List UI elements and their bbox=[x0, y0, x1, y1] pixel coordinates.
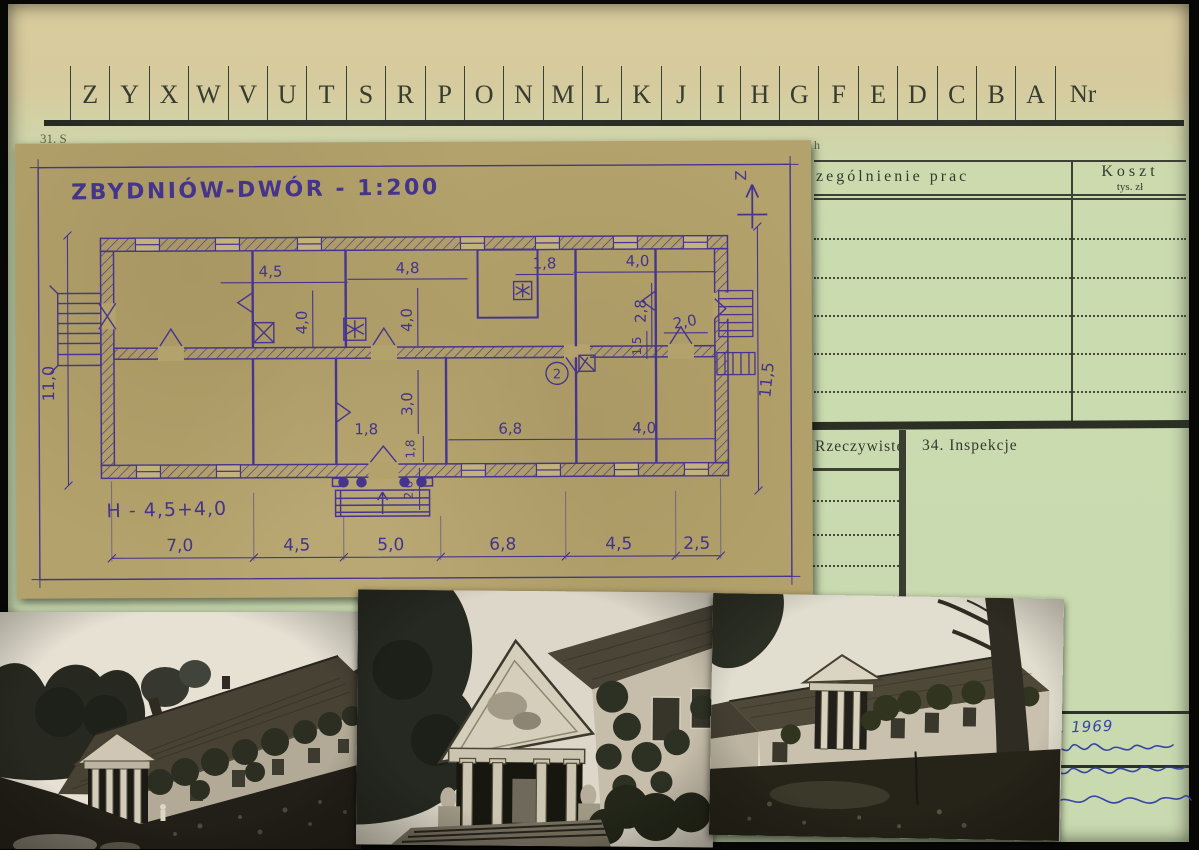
works-column-header: zególnienie prac bbox=[816, 168, 969, 186]
letter-tab-a: A bbox=[1015, 66, 1054, 120]
actual-header-underline bbox=[813, 468, 899, 471]
svg-text:1,8: 1,8 bbox=[533, 254, 557, 272]
svg-text:11,5: 11,5 bbox=[755, 361, 777, 398]
svg-text:1,8: 1,8 bbox=[403, 439, 417, 458]
letter-tab-y: Y bbox=[109, 66, 148, 120]
letter-tab-n: N bbox=[503, 66, 542, 120]
actual-row-line bbox=[813, 500, 899, 502]
porch-with-columns bbox=[332, 477, 432, 516]
letter-tab-h: H bbox=[740, 66, 779, 120]
svg-text:4,0: 4,0 bbox=[398, 308, 416, 332]
svg-text:4,5: 4,5 bbox=[605, 534, 632, 554]
works-row-line bbox=[814, 277, 1186, 279]
works-header-rule-2 bbox=[814, 198, 1186, 200]
status-column-divider bbox=[899, 430, 906, 602]
actual-row-line bbox=[813, 534, 899, 536]
letter-tab-i: I bbox=[700, 66, 739, 120]
svg-text:5,0: 5,0 bbox=[377, 535, 404, 555]
works-row-line bbox=[814, 391, 1186, 393]
sketch-border bbox=[30, 156, 800, 587]
svg-text:4,0: 4,0 bbox=[626, 252, 650, 270]
header-thick-rule bbox=[44, 120, 1184, 126]
letter-tab-j: J bbox=[661, 66, 700, 120]
svg-text:6,8: 6,8 bbox=[498, 420, 522, 438]
note-scribble-line-1 bbox=[1053, 744, 1173, 753]
letter-tab-z: Z bbox=[70, 66, 109, 120]
photo-portico-closeup bbox=[356, 589, 715, 847]
actual-column-header: Rzeczywiste bbox=[815, 438, 904, 456]
svg-text:2,5: 2,5 bbox=[683, 534, 710, 554]
works-table-top-rule bbox=[814, 160, 1186, 162]
cost-header-label: Koszt bbox=[1074, 163, 1186, 181]
note-signature-scribble bbox=[1055, 796, 1191, 805]
svg-text:4,8: 4,8 bbox=[396, 259, 420, 277]
letter-tab-f: F bbox=[818, 66, 857, 120]
letter-tab-x: X bbox=[149, 66, 188, 120]
letter-tab-b: B bbox=[976, 66, 1015, 120]
svg-text:6,8: 6,8 bbox=[489, 535, 516, 555]
hidden-caption-fragment-right: h bbox=[814, 138, 820, 153]
letter-tab-nr: Nr bbox=[1055, 66, 1133, 120]
handwritten-note: II. 1969 bbox=[1041, 713, 1193, 830]
letter-tab-m: M bbox=[543, 66, 582, 120]
photo-manor-front-left bbox=[0, 612, 361, 849]
svg-text:11,0: 11,0 bbox=[39, 366, 58, 402]
photo-manor-front-right bbox=[709, 593, 1064, 841]
floor-plan-sketch: ZBYDNIÓW-DWÓR - 1:200 Z bbox=[15, 140, 813, 598]
letter-tab-k: K bbox=[621, 66, 660, 120]
svg-text:1,5: 1,5 bbox=[630, 336, 644, 355]
cost-header-unit: tys. zł bbox=[1074, 181, 1186, 193]
svg-text:2,0: 2,0 bbox=[672, 311, 699, 333]
works-header-rule-1 bbox=[814, 194, 1186, 196]
letter-tab-v: V bbox=[228, 66, 267, 120]
room-number-note: 2 bbox=[553, 367, 561, 382]
svg-text:4,0: 4,0 bbox=[293, 311, 311, 335]
sketch-title: ZBYDNIÓW-DWÓR - 1:200 bbox=[71, 174, 440, 205]
letter-tab-d: D bbox=[897, 66, 936, 120]
svg-text:2,0: 2,0 bbox=[401, 480, 415, 499]
north-arrow-icon: Z bbox=[732, 170, 767, 228]
svg-text:3,0: 3,0 bbox=[398, 392, 416, 416]
note-scribble-line-2 bbox=[1049, 766, 1185, 775]
actual-row-line bbox=[813, 565, 899, 567]
inspections-column-header: 34. Inspekcje bbox=[922, 437, 1018, 455]
letter-tab-e: E bbox=[858, 66, 897, 120]
letter-tab-g: G bbox=[779, 66, 818, 120]
svg-text:1,8: 1,8 bbox=[354, 420, 378, 438]
letter-tab-u: U bbox=[267, 66, 306, 120]
letter-tab-l: L bbox=[582, 66, 621, 120]
works-row-line bbox=[814, 238, 1186, 240]
letter-tab-o: O bbox=[464, 66, 503, 120]
cost-column-header: Koszt tys. zł bbox=[1074, 163, 1186, 193]
letter-tab-s: S bbox=[346, 66, 385, 120]
exterior-stairs bbox=[50, 285, 101, 373]
svg-text:2,8: 2,8 bbox=[632, 299, 650, 323]
height-label: H - 4,5+4,0 bbox=[106, 498, 227, 523]
works-row-line bbox=[814, 353, 1186, 355]
works-row-line bbox=[814, 315, 1186, 317]
letter-tab-r: R bbox=[385, 66, 424, 120]
svg-text:Z: Z bbox=[732, 170, 750, 180]
svg-text:4,0: 4,0 bbox=[632, 419, 656, 437]
scanned-card-collage: ZYXWVUTSRPONMLKJIHGFEDCBA Nr 31. S h zeg… bbox=[0, 0, 1199, 850]
works-column-divider bbox=[1071, 160, 1073, 424]
letter-tab-c: C bbox=[937, 66, 976, 120]
letter-tab-t: T bbox=[306, 66, 345, 120]
letter-tab-p: P bbox=[425, 66, 464, 120]
letter-tab-w: W bbox=[188, 66, 227, 120]
svg-text:7,0: 7,0 bbox=[166, 536, 193, 556]
letter-tab-row: ZYXWVUTSRPONMLKJIHGFEDCBA Nr bbox=[70, 66, 1133, 120]
letter-tabs: ZYXWVUTSRPONMLKJIHGFEDCBA bbox=[70, 66, 1055, 120]
svg-text:4,5: 4,5 bbox=[259, 263, 283, 281]
svg-text:4,5: 4,5 bbox=[283, 535, 310, 555]
